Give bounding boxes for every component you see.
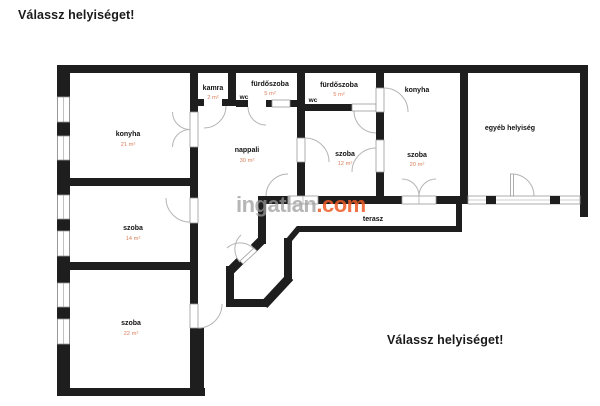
door-arc	[235, 235, 241, 262]
door-arc	[198, 304, 222, 328]
door-frame	[376, 140, 384, 172]
choose-room-prompt-top: Válassz helyiséget!	[18, 8, 135, 22]
door-arc	[266, 174, 288, 196]
room-label-egyeb-helyiseg[interactable]: egyéb helyiség	[485, 125, 535, 132]
room-label-nappali[interactable]: nappali	[235, 147, 260, 154]
room-label-terasz[interactable]: terasz	[363, 216, 384, 223]
door-arc	[512, 174, 534, 196]
room-area-szoba-14: 14 m²	[126, 236, 141, 242]
room-labels-layer: konyha 21 m² kamra 2 m² fürdőszoba 5 m² …	[116, 81, 535, 337]
room-area-nappali: 30 m²	[240, 158, 255, 164]
door-arc	[248, 107, 266, 125]
room-label-szoba-14[interactable]: szoba	[123, 225, 143, 232]
room-label-szoba-12[interactable]: szoba	[335, 151, 355, 158]
door-arc	[305, 138, 329, 162]
floorplan-page: Válassz helyiséget!	[0, 0, 600, 406]
room-label-kamra[interactable]: kamra	[203, 85, 224, 92]
door-arc	[419, 179, 436, 196]
floorplan-svg: konyha 21 m² kamra 2 m² fürdőszoba 5 m² …	[0, 0, 600, 406]
room-area-szoba-22: 22 m²	[124, 331, 139, 337]
room-area-furdoszoba-1: 5 m²	[264, 91, 276, 97]
door-frame	[190, 304, 198, 328]
room-area-szoba-20: 20 m²	[410, 162, 425, 168]
window	[272, 100, 290, 107]
door-frame	[376, 88, 384, 112]
door-arc	[227, 243, 254, 249]
door-arc	[173, 130, 191, 148]
room-area-konyha-left: 21 m²	[121, 142, 136, 148]
room-area-kamra: 2 m²	[207, 95, 219, 101]
door-arc	[354, 111, 376, 133]
door-arc	[173, 112, 191, 130]
window	[352, 104, 376, 111]
room-label-wc-1[interactable]: wc	[239, 94, 249, 101]
door-leaf	[511, 174, 514, 196]
door-arc	[352, 148, 376, 172]
room-area-szoba-12: 12 m²	[338, 161, 353, 167]
door-arc	[402, 179, 419, 196]
door-frame	[190, 198, 198, 223]
room-label-furdoszoba-2[interactable]: fürdőszoba	[320, 82, 358, 89]
room-label-wc-2[interactable]: wc	[308, 97, 318, 104]
room-label-szoba-22[interactable]: szoba	[121, 320, 141, 327]
room-area-furdoszoba-2: 5 m²	[333, 92, 345, 98]
door-arc	[166, 198, 190, 222]
doors-layer	[166, 88, 534, 328]
room-label-szoba-20[interactable]: szoba	[407, 152, 427, 159]
window-band	[468, 196, 580, 204]
door-leaf-diagonal	[240, 248, 257, 264]
door-frame	[297, 138, 305, 162]
choose-room-prompt-bottom: Válassz helyiséget!	[387, 333, 504, 347]
room-label-konyha-left[interactable]: konyha	[116, 131, 141, 138]
room-label-konyha-right[interactable]: konyha	[405, 87, 430, 94]
door-frame	[190, 112, 198, 147]
door-arc	[204, 106, 226, 128]
room-label-furdoszoba-1[interactable]: fürdőszoba	[251, 81, 289, 88]
